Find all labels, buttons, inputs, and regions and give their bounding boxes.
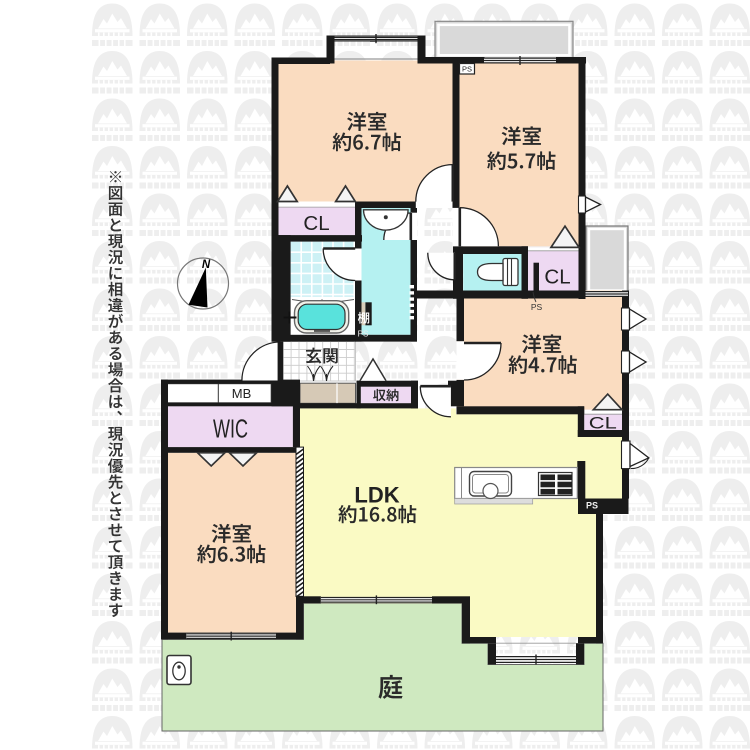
svg-text:CL: CL [303, 212, 329, 235]
svg-text:PS: PS [531, 302, 543, 312]
svg-text:MB: MB [232, 386, 252, 401]
svg-text:PS: PS [358, 330, 369, 339]
svg-text:LDK: LDK [354, 483, 399, 508]
svg-text:CL: CL [589, 414, 617, 433]
svg-text:PS: PS [462, 65, 472, 74]
svg-text:CL: CL [544, 266, 570, 289]
svg-text:N: N [202, 259, 211, 271]
svg-text:PS: PS [586, 501, 598, 511]
svg-text:WIC: WIC [213, 414, 248, 444]
